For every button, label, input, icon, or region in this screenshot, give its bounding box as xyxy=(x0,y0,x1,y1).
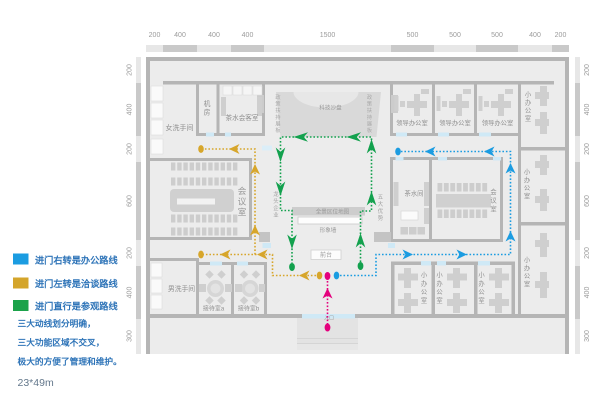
svg-text:500: 500 xyxy=(449,32,461,39)
svg-text:400: 400 xyxy=(584,104,591,116)
svg-text:400: 400 xyxy=(174,32,186,39)
svg-text:500: 500 xyxy=(407,32,419,39)
svg-text:200: 200 xyxy=(584,143,591,155)
svg-text:小办公室: 小办公室 xyxy=(524,255,531,288)
svg-text:小办公室: 小办公室 xyxy=(478,270,485,305)
svg-text:女洗手间: 女洗手间 xyxy=(166,123,194,132)
svg-text:科技沙盘: 科技沙盘 xyxy=(319,104,342,112)
svg-text:前台: 前台 xyxy=(320,251,332,259)
svg-text:400: 400 xyxy=(584,287,591,299)
svg-text:200: 200 xyxy=(127,143,134,155)
svg-text:全景区位地图: 全景区位地图 xyxy=(316,208,350,216)
svg-text:政策扶持展板: 政策扶持展板 xyxy=(275,93,281,134)
svg-text:形象墙: 形象墙 xyxy=(320,226,337,234)
svg-text:政策扶持展板: 政策扶持展板 xyxy=(367,93,373,134)
svg-text:领导办公室: 领导办公室 xyxy=(396,118,427,127)
svg-text:三大动线划分明确，: 三大动线划分明确， xyxy=(18,318,96,329)
svg-text:400: 400 xyxy=(242,32,254,39)
svg-text:茶水会客室: 茶水会客室 xyxy=(226,113,259,122)
svg-text:机房: 机房 xyxy=(204,99,211,117)
svg-text:进门左转是洽谈路线: 进门左转是洽谈路线 xyxy=(35,278,118,289)
svg-text:进门直行是参观路线: 进门直行是参观路线 xyxy=(35,301,118,312)
svg-text:400: 400 xyxy=(208,32,220,39)
svg-text:接待室b: 接待室b xyxy=(238,305,260,313)
svg-text:极大的方便了管理和维护。: 极大的方便了管理和维护。 xyxy=(18,356,122,367)
svg-text:龙头企业: 龙头企业 xyxy=(273,190,279,219)
svg-text:600: 600 xyxy=(584,195,591,207)
svg-text:进门右转是办公路线: 进门右转是办公路线 xyxy=(35,255,118,266)
svg-text:400: 400 xyxy=(127,104,134,116)
svg-text:会议室: 会议室 xyxy=(238,185,247,217)
svg-text:会议室: 会议室 xyxy=(490,187,497,213)
svg-text:三大功能区域不交叉，: 三大功能区域不交叉， xyxy=(18,337,105,348)
svg-text:入口: 入口 xyxy=(324,316,334,322)
svg-text:200: 200 xyxy=(149,32,161,39)
svg-text:200: 200 xyxy=(555,32,567,39)
svg-text:600: 600 xyxy=(127,195,134,207)
svg-text:400: 400 xyxy=(127,287,134,299)
svg-text:200: 200 xyxy=(127,247,134,259)
svg-text:200: 200 xyxy=(584,64,591,76)
svg-text:300: 300 xyxy=(127,330,134,342)
svg-text:200: 200 xyxy=(127,64,134,76)
svg-text:400: 400 xyxy=(529,32,541,39)
svg-text:200: 200 xyxy=(584,247,591,259)
svg-text:500: 500 xyxy=(491,32,503,39)
svg-text:接待室a: 接待室a xyxy=(203,305,225,313)
svg-text:领导办公室: 领导办公室 xyxy=(482,118,513,127)
svg-text:男洗手间: 男洗手间 xyxy=(168,284,195,293)
svg-text:领导办公室: 领导办公室 xyxy=(439,118,470,127)
svg-text:300: 300 xyxy=(584,330,591,342)
svg-text:1500: 1500 xyxy=(320,32,336,39)
svg-text:小办公室: 小办公室 xyxy=(436,270,443,305)
svg-text:茶水间: 茶水间 xyxy=(405,189,424,198)
svg-text:小办公室: 小办公室 xyxy=(524,167,531,200)
svg-text:23*49m: 23*49m xyxy=(18,377,54,389)
svg-text:小办公室: 小办公室 xyxy=(525,90,532,123)
svg-text:小办公室: 小办公室 xyxy=(421,270,428,305)
